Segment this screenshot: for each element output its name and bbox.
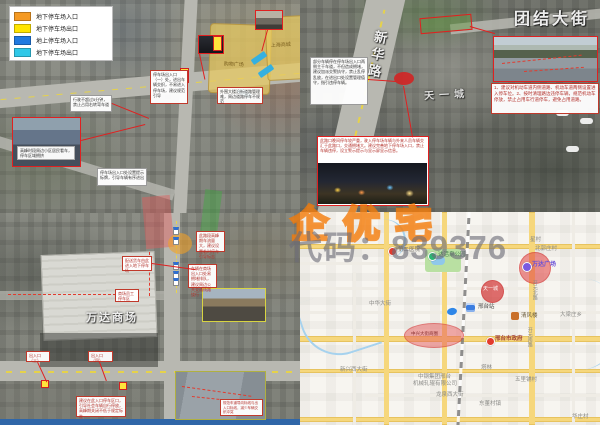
- legend-swatch-underground-exit: [14, 24, 31, 33]
- tr-photo-note: 1、建议对机动车道内侧道路、机动车道两侧设置进入停车位。2、按时清理路边违停车辆…: [491, 83, 599, 114]
- parking-p-marker: [119, 382, 127, 390]
- tr-street-photo: [493, 36, 598, 82]
- legend-row: 地上停车场入口: [14, 34, 108, 46]
- road-sign-chip: [173, 278, 179, 286]
- bl-callout-queue: 车辆在商场出入口处易拥堵排队，建议周边公共交通线路绕行: [188, 264, 217, 288]
- building-label-chip: [566, 146, 579, 152]
- village-label-huazhuang: 华庄村: [572, 414, 589, 420]
- bl-road-photo: 规范车道导向标线与出入口标线，减少车辆交织冲突: [175, 371, 266, 420]
- wanda-plaza-label: 万达广场: [532, 262, 556, 269]
- legend-row: 地下停车场出口: [14, 22, 108, 34]
- legend-row: 地下停车场出口: [14, 46, 108, 58]
- parking-analysis-infographic: 购物广场 上海商城 地下停车场入口 地下停车场出口 地上停车场入口 地下停车场出…: [0, 0, 600, 425]
- legend-swatch-underground-entrance: [14, 12, 31, 21]
- tr-night-note: 此路口晚间停车较严重，驶入停车场车辆与外来人员车辆交汇于此路口，交通拥堵大。建议…: [320, 138, 425, 154]
- road-label-kaiyuan-north: 开元北路: [531, 280, 537, 300]
- legend-swatch-surface-entrance: [14, 36, 31, 45]
- tianyi-city-label: 天一城: [424, 85, 470, 102]
- village-label-wulipu: 五里铺村: [515, 377, 537, 383]
- government-label: 邢台市政府: [495, 336, 523, 342]
- business-circle-label: 中兴大街商圈: [411, 331, 438, 336]
- watermark-code: 代码：839376: [289, 221, 507, 269]
- wanda-mall-label: 万达商场: [86, 309, 138, 325]
- tl-main-road-vertical: [173, 0, 198, 213]
- tl-photo-caption: 高峰时段周边小区居民看车，停车区域拥挤: [17, 146, 75, 160]
- village-label: 星村: [530, 237, 541, 243]
- congestion-spot-marker: [394, 72, 414, 85]
- tr-left-note: 部分车辆停在停车场出入口两侧主干车道，不但造成拥堵，建议加派交警执守，禁止乱停乱…: [310, 57, 368, 105]
- qingfeng-tower-icon: [511, 312, 519, 320]
- legend-label: 地下停车场入口: [36, 12, 78, 21]
- map-road-h4: [365, 394, 600, 397]
- company-label-line1: 中钢集团邢台: [418, 374, 451, 380]
- photo-annotation-line: [524, 67, 584, 72]
- photo-annotation-line: [502, 55, 582, 64]
- bl-callout-delivery: 配送货车由此进入地下停车场: [122, 256, 152, 271]
- bl-callout-staff: 商场员工停车区: [115, 289, 139, 302]
- road-sign-chip: [173, 237, 179, 245]
- legend-label: 地下停车场出口: [36, 48, 78, 57]
- legend-swatch-surface-exit: [14, 48, 31, 57]
- area-label: 上海商城: [271, 41, 291, 49]
- area-label: 购物广场: [224, 60, 244, 68]
- government-pin-icon: [486, 337, 495, 346]
- bl-photo-caption: 规范车道导向标线与出入口标线，减少车辆交织冲突: [220, 399, 263, 416]
- station-label: 邢台站: [478, 304, 495, 310]
- road-label-xinxing: 新兴西大街: [340, 367, 368, 373]
- bl-callout-exit4: 出入口（四）: [88, 351, 113, 362]
- bl-shopfront-photo: [202, 288, 266, 322]
- river-line: [300, 282, 382, 365]
- building-label-chip: [580, 118, 593, 124]
- orange-spot-overlay: [168, 233, 192, 254]
- company-label-line2: 机械轧辊有限公司: [413, 381, 457, 387]
- qingfeng-tower-label: 清风楼: [521, 313, 538, 319]
- road-sign-chip: [173, 227, 179, 235]
- bl-callout-exit3: 出入口（三）: [26, 351, 50, 362]
- legend-label: 地下停车场出口: [36, 24, 78, 33]
- road-label-kaiyuan-south: 开元南路: [526, 327, 532, 347]
- tl-traffic-photo: 高峰时段周边小区居民看车，停车区域拥挤: [12, 117, 81, 167]
- road-label-zhonghua: 中华大街: [369, 301, 391, 307]
- village-label: 北郭庄村: [535, 246, 557, 252]
- bl-callout-advice: 建议在此入口停车区口，引导社会车辆自行停放，高峰期关闭不低于规定标准: [76, 396, 126, 417]
- tl-callout-roadside: 外围大楼沿街道路管理难，周边道路停车不规范: [217, 87, 263, 104]
- legend-label: 地上停车场入口: [36, 36, 78, 45]
- poi-label-talin: 塔林: [481, 365, 492, 371]
- wanda-plaza-icon: [522, 262, 532, 272]
- train-station-icon: [466, 303, 475, 312]
- village-label-dongdong: 东董村镇: [479, 401, 501, 407]
- tianyi-city-map-label: 天一城: [483, 287, 498, 293]
- street-title: 团结大街: [514, 5, 590, 29]
- legend-row: 地下停车场入口: [14, 10, 108, 22]
- route-dash-line: [8, 294, 116, 295]
- tl-street-photo: [255, 10, 283, 30]
- tl-callout-signage: 停车场出入口处设置提示标牌，引导车辆有序进出: [97, 168, 147, 186]
- tl-callout-entrance-one: 停车场出入口（一）处，进出车辆交织，不易进入停车场，建议规范引导: [150, 70, 188, 104]
- parking-legend: 地下停车场入口 地下停车场出口 地上停车场入口 地下停车场出口: [9, 6, 113, 61]
- map-road-h5: [300, 417, 600, 422]
- river-line: [532, 273, 600, 376]
- road-label-longquan: 龙泉西大街: [436, 392, 464, 398]
- yellow-entrance-arrow-icon: [213, 36, 222, 51]
- district-label-daliang: 大梁庄乡: [560, 312, 582, 318]
- bl-callout-peak: 此路段高峰期车流量大，建议设置临时停车引导标志: [196, 231, 225, 252]
- tl-callout-five-minutes: 行驶不超过5分钟，禁止占用右转弯车道: [70, 95, 112, 112]
